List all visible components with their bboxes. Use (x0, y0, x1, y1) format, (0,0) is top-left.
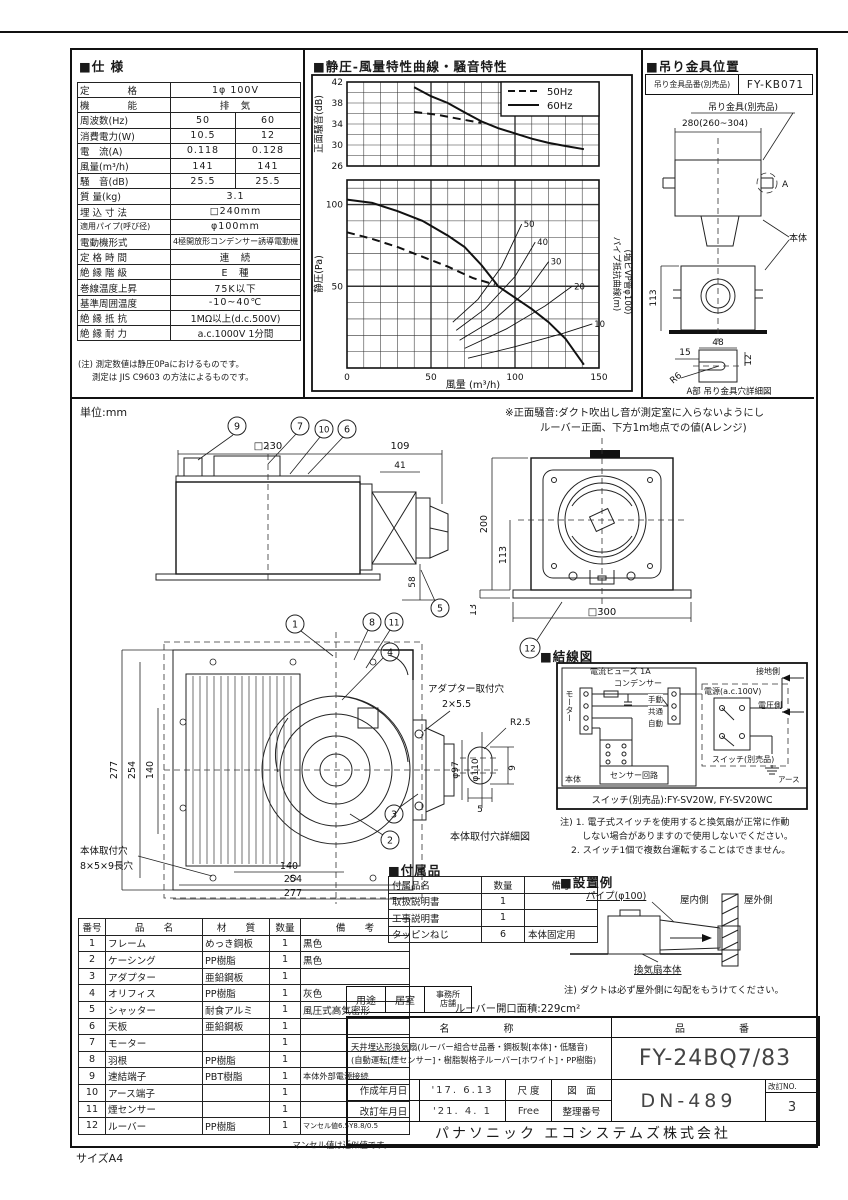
tb-revised-label: 改訂年月日 (348, 1101, 420, 1122)
svg-text:100: 100 (506, 373, 523, 383)
wiring-earth-label: アース (778, 774, 800, 785)
dim-254: 254 (127, 761, 138, 779)
detail-5: 5 (477, 805, 483, 815)
rear-dim-113: 113 (498, 546, 509, 564)
svg-text:4: 4 (387, 648, 393, 659)
detail-9: 9 (508, 765, 518, 771)
tb-name-header: 名 称 (348, 1018, 612, 1038)
svg-text:2: 2 (387, 836, 393, 847)
dim-277: 277 (109, 761, 120, 779)
wiring-lines (556, 662, 808, 810)
install-outdoor-label: 屋外側 (744, 892, 773, 906)
rear-dim-300: □300 (588, 607, 617, 618)
svg-text:60Hz: 60Hz (547, 101, 573, 112)
svg-text:9: 9 (234, 422, 240, 433)
bottom-unit (164, 632, 498, 904)
wiring-diagram: 電流ヒューズ 1A コンデンサー モーター 手動 共通 自動 センサー回路 本体… (556, 662, 808, 810)
bracket-48-text: 48 (712, 338, 724, 348)
bracket-front-view (669, 258, 767, 342)
install-indoor-label: 屋内側 (680, 892, 709, 906)
wiring-note-2: しない場合がありますので使用しないでください。 (582, 828, 793, 842)
install-fan-body-label: 換気扇本体 (634, 962, 682, 976)
tb-no-header: 品 番 (612, 1018, 818, 1038)
tb-part-number: FY-24BQ7/83 (612, 1038, 818, 1080)
wiring-ground-side-label: 接地側 (756, 666, 780, 677)
adapter-hole-label-2: 2×5.5 (442, 699, 471, 710)
tb-scale-label: 尺 度 (506, 1080, 552, 1101)
pq-x-axis-label: 風量 (m³/h) (446, 379, 501, 391)
install-example: ■設置例 パイプ(φ100) 屋内側 屋外側 換気扇本体 注) ダクトは必ず屋外… (558, 872, 818, 1002)
bracket-partno-table: 吊り金具品番(別売品) FY-KB071 (645, 74, 813, 95)
product-name-line2: (自動運転[煙センサー]・樹脂製格子ルーバー[ホワイト]・PP樹脂) (351, 1054, 609, 1067)
front-noise-note-1: ※正面騒音:ダクト吹出し音が測定室に入らないようにし (505, 404, 764, 419)
louver-area-note: ルーバー開口面積:229cm² (455, 1000, 580, 1015)
usage-living: 居室 (386, 987, 425, 1012)
rear-dim-200: 200 (479, 515, 490, 533)
side-dim-109: 109 (390, 441, 409, 452)
bracket-a-label: A (782, 180, 789, 190)
dim-254b: 254 (284, 874, 302, 885)
spec-table: 定 格1φ 100V 機 能排 気 周波数(Hz)5060 消費電力(W)10.… (77, 82, 301, 341)
wiring-sensor-label: センサー回路 (610, 770, 658, 781)
chart-title: ■静圧-風量特性曲線・騒音特性 (313, 56, 508, 75)
dim-277b: 277 (284, 888, 302, 899)
tb-dwg-label-2: 整理番号 (552, 1101, 612, 1122)
svg-text:10: 10 (594, 320, 605, 330)
side-dim-41: 41 (394, 461, 405, 471)
wiring-capacitor-label: コンデンサー (614, 678, 662, 689)
bracket-r6-text: R6 (669, 371, 685, 387)
tb-scale-value: Free (506, 1101, 552, 1122)
bracket-drawing: 吊り金具(別売品) 280(260~304) A 本体 113 (643, 98, 815, 396)
svg-text:42: 42 (332, 78, 343, 88)
spec-note-1: (注) 測定数値は静圧0Paにおけるものです。 (78, 358, 244, 370)
svg-text:50: 50 (332, 282, 344, 292)
tb-dwg-number: DN-489 (612, 1080, 766, 1122)
tb-rev-label: 改訂NO. (766, 1080, 818, 1093)
svg-text:6: 6 (344, 425, 350, 436)
bracket-15-text: 15 (679, 348, 690, 358)
tb-rev-number: 3 (766, 1093, 818, 1122)
wiring-motor-label: モーター (564, 690, 575, 734)
wiring-volt-side-label: 電圧側 (758, 700, 782, 711)
svg-text:1: 1 (292, 620, 298, 631)
pipe-resistance-label-2: (塩ビVP管φ100) (622, 250, 633, 315)
install-fan (570, 902, 740, 962)
bracket-title: ■吊り金具位置 (646, 56, 740, 75)
dim-140b: 140 (280, 861, 298, 872)
svg-text:8: 8 (369, 618, 375, 629)
install-pipe-label: パイプ(φ100) (586, 888, 646, 902)
bracket-detail-caption: A部 吊り金具穴詳細図 (686, 386, 771, 396)
wiring-auto-label: 自動 (648, 718, 663, 729)
wiring-power-label: 電源(a.c.100V) (704, 686, 761, 697)
spec-sheet-page: ■仕 様 定 格1φ 100V 機 能排 気 周波数(Hz)5060 消費電力(… (0, 0, 848, 1200)
dim-phi97: φ97 (451, 761, 461, 778)
tb-revised-date: '21. 4. 1 (420, 1101, 506, 1122)
svg-text:50: 50 (425, 373, 437, 383)
bottom-callouts: 1 8 11 4 3 2 (286, 613, 418, 849)
dim-140: 140 (145, 761, 156, 779)
body-hole-label-1: 本体取付穴 (80, 845, 128, 857)
spec-title: ■仕 様 (79, 56, 124, 75)
spec-note-2: 測定は JIS C9603 の方法によるものです。 (92, 371, 254, 383)
pipe-resistance-label-1: パイプ抵抗曲線(m) (611, 237, 622, 311)
divider-h (70, 397, 814, 399)
divider-1 (303, 48, 305, 398)
bracket-top-view (663, 138, 777, 254)
svg-text:150: 150 (590, 373, 607, 383)
svg-text:38: 38 (332, 99, 344, 109)
svg-text:0: 0 (344, 373, 350, 383)
bottom-view-drawing: 1 8 11 4 3 2 (78, 612, 556, 914)
wiring-manual-label: 手動 (648, 694, 663, 705)
svg-text:26: 26 (332, 162, 344, 172)
bracket-12-text: 12 (744, 354, 754, 365)
rear-body (513, 438, 691, 610)
wiring-switch-models: スイッチ(別売品):FY-SV20W, FY-SV20WC (556, 792, 808, 806)
adapter-hole-label-1: アダプター取付穴 (428, 683, 505, 695)
paper-size-label: サイズA4 (76, 1150, 123, 1166)
noise-y-axis-label: 正面騒音(dB) (313, 95, 325, 153)
mount-hole-detail (460, 728, 514, 802)
detail-r25: R2.5 (510, 718, 531, 728)
bracket-span-dim: 280(260~304) (682, 119, 748, 129)
top-rule (0, 31, 848, 33)
svg-text:10: 10 (319, 426, 330, 436)
pq-noise-chart: 正面騒音(dB) 静圧(Pa) 風量 (m³/h) パイプ抵抗曲線(m) (塩ビ… (311, 74, 633, 392)
tb-company: パナソニック エコシステムズ株式会社 (348, 1122, 818, 1144)
svg-text:50: 50 (524, 220, 535, 230)
install-note: 注) ダクトは必ず屋外側に勾配をもうけてください。 (564, 982, 784, 996)
title-block: 名 称 品 番 天井埋込形換気扇(ルーバー組合せ品番・鋼板製[本体]・低騒音) … (346, 1016, 820, 1146)
wiring-body-label: 本体 (565, 774, 581, 785)
bracket-113-text: 113 (649, 289, 659, 306)
parts-footnote: マンセル値は近似値です。 (78, 1139, 392, 1151)
svg-text:30: 30 (332, 141, 344, 151)
mount-hole-caption: 本体取付穴詳細図 (450, 830, 530, 843)
wiring-note-1: 注) 1. 電子式スイッチを使用すると換気扇が正常に作動 (560, 814, 790, 828)
wiring-fuse-label: 電流ヒューズ 1A (590, 666, 651, 677)
wiring-switch-label: スイッチ(別売品) (712, 754, 774, 765)
wiring-note-3: 2. スイッチ1個で複数台運転することはできません。 (571, 842, 790, 856)
tb-created-date: '17. 6.13 (420, 1080, 506, 1101)
install-wall (722, 894, 738, 966)
svg-text:50Hz: 50Hz (547, 87, 573, 98)
chart-border (312, 75, 632, 391)
bracket-partno-value: FY-KB071 (739, 75, 812, 94)
tb-dwg-label-1: 図 面 (552, 1080, 612, 1101)
bracket-item-label: 吊り金具(別売品) (708, 101, 778, 113)
wiring-common-label: 共通 (648, 706, 663, 717)
svg-text:7: 7 (297, 422, 303, 433)
body-hole-label-2: 8×5×9長穴 (80, 860, 134, 872)
svg-text:34: 34 (332, 120, 344, 130)
side-view-drawing: 9 7 10 6 5 □230 109 41 (118, 412, 480, 642)
bracket-body-label: 本体 (789, 232, 807, 244)
tb-product-name: 天井埋込形換気扇(ルーバー組合せ品番・鋼板製[本体]・低騒音) (自動運転[煙セ… (348, 1038, 612, 1080)
tb-created-label: 作成年月日 (348, 1080, 420, 1101)
svg-text:20: 20 (574, 282, 585, 292)
svg-text:100: 100 (326, 201, 343, 211)
svg-text:40: 40 (537, 238, 548, 248)
usage-strip: 用途 居室 事務所店舗 (346, 986, 472, 1013)
dim-phi110: φ110 (471, 758, 481, 781)
side-dim-58: 58 (408, 576, 418, 588)
rear-13-dim (480, 590, 510, 598)
product-name-line1: 天井埋込形換気扇(ルーバー組合せ品番・鋼板製[本体]・低騒音) (351, 1041, 609, 1054)
svg-text:30: 30 (551, 258, 562, 268)
pq-y-axis-label: 静圧(Pa) (313, 255, 325, 293)
usage-label: 用途 (347, 987, 386, 1012)
svg-text:11: 11 (389, 619, 400, 629)
bracket-partno-label: 吊り金具品番(別売品) (646, 75, 739, 94)
